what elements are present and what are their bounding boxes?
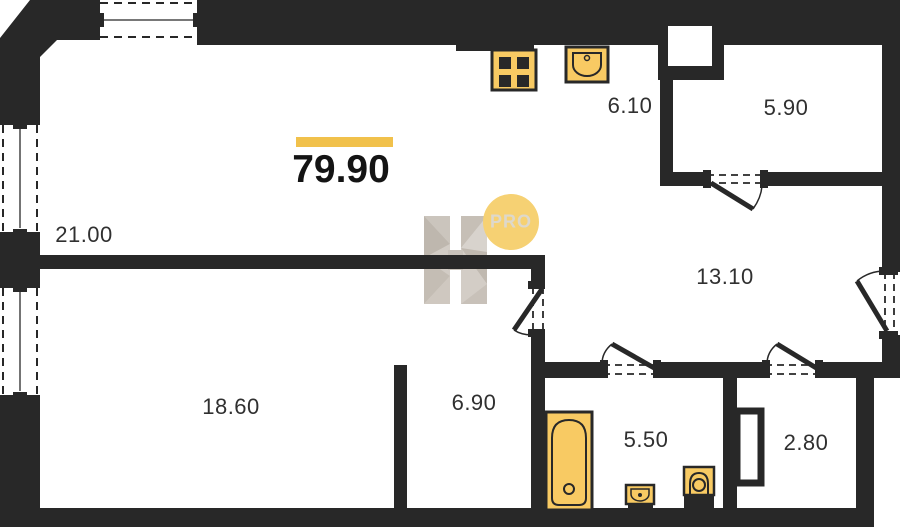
room-area-corridor: 13.10 <box>696 264 754 290</box>
floor-plan: 79.90 21.00 18.60 6.90 5.50 2.80 13.10 6… <box>0 0 900 527</box>
room-area-bedroom: 18.60 <box>202 394 260 420</box>
wall-end-caps <box>13 13 898 400</box>
room-area-balcony: 5.90 <box>764 95 809 121</box>
room-area-kitchen: 6.10 <box>608 93 653 119</box>
toilet-icon <box>684 467 714 510</box>
total-area-label: 79.90 <box>292 148 390 192</box>
stove-icon <box>492 50 536 90</box>
total-area-accent-bar <box>296 137 393 147</box>
kitchen-sink-icon <box>566 47 608 82</box>
room-area-hall: 6.90 <box>452 390 497 416</box>
washbasin-icon <box>626 485 654 510</box>
room-area-bathroom: 5.50 <box>624 427 669 453</box>
room-area-living-room: 21.00 <box>55 222 113 248</box>
water-heater-icon <box>737 411 761 483</box>
walls <box>0 0 900 527</box>
floorplan-drawing <box>0 0 900 527</box>
bathtub-icon <box>546 412 592 510</box>
pro-badge-label: PRO <box>490 212 532 233</box>
room-area-storage: 2.80 <box>784 430 829 456</box>
